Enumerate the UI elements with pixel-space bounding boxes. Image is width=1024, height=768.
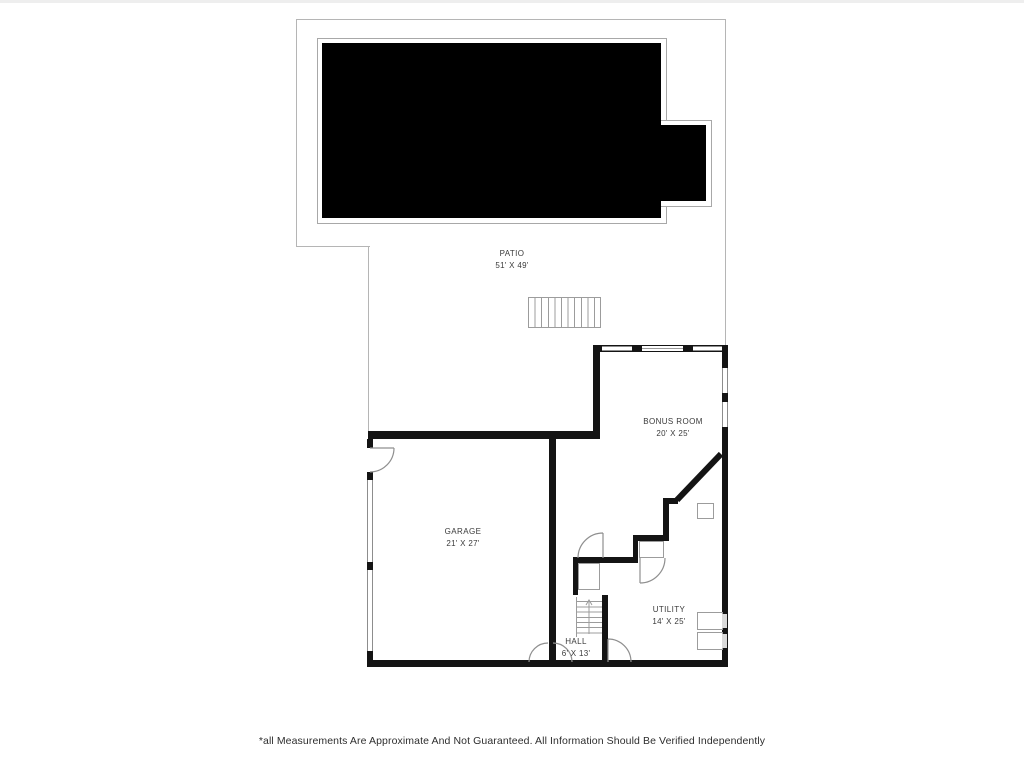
room-dimensions: 20' X 25' <box>643 428 703 440</box>
room-name: HALL <box>562 636 591 648</box>
wall-diagonal <box>677 454 721 500</box>
door-swing <box>640 558 665 583</box>
room-dimensions: 51' X 49' <box>495 260 528 272</box>
room-label-utility: UTILITY 14' X 25' <box>652 604 685 628</box>
room-name: BONUS ROOM <box>643 416 703 428</box>
room-label-patio: PATIO 51' X 49' <box>495 248 528 272</box>
stairs-direction-arrow <box>586 600 592 634</box>
room-dimensions: 6' X 13' <box>562 648 591 660</box>
floor-plan: PATIO 51' X 49' BONUS ROOM 20' X 25' GAR… <box>0 0 1024 768</box>
door-swings-layer <box>0 0 1024 768</box>
room-label-garage: GARAGE 21' X 27' <box>445 526 482 550</box>
door-swing <box>370 448 394 472</box>
room-name: PATIO <box>495 248 528 260</box>
room-label-hall: HALL 6' X 13' <box>562 636 591 660</box>
disclaimer-text: *all Measurements Are Approximate And No… <box>259 735 765 747</box>
room-name: UTILITY <box>652 604 685 616</box>
room-dimensions: 14' X 25' <box>652 616 685 628</box>
door-swing <box>578 533 603 558</box>
door-swing <box>608 639 631 662</box>
room-label-bonus-room: BONUS ROOM 20' X 25' <box>643 416 703 440</box>
door-swing <box>529 643 548 662</box>
room-dimensions: 21' X 27' <box>445 538 482 550</box>
room-name: GARAGE <box>445 526 482 538</box>
